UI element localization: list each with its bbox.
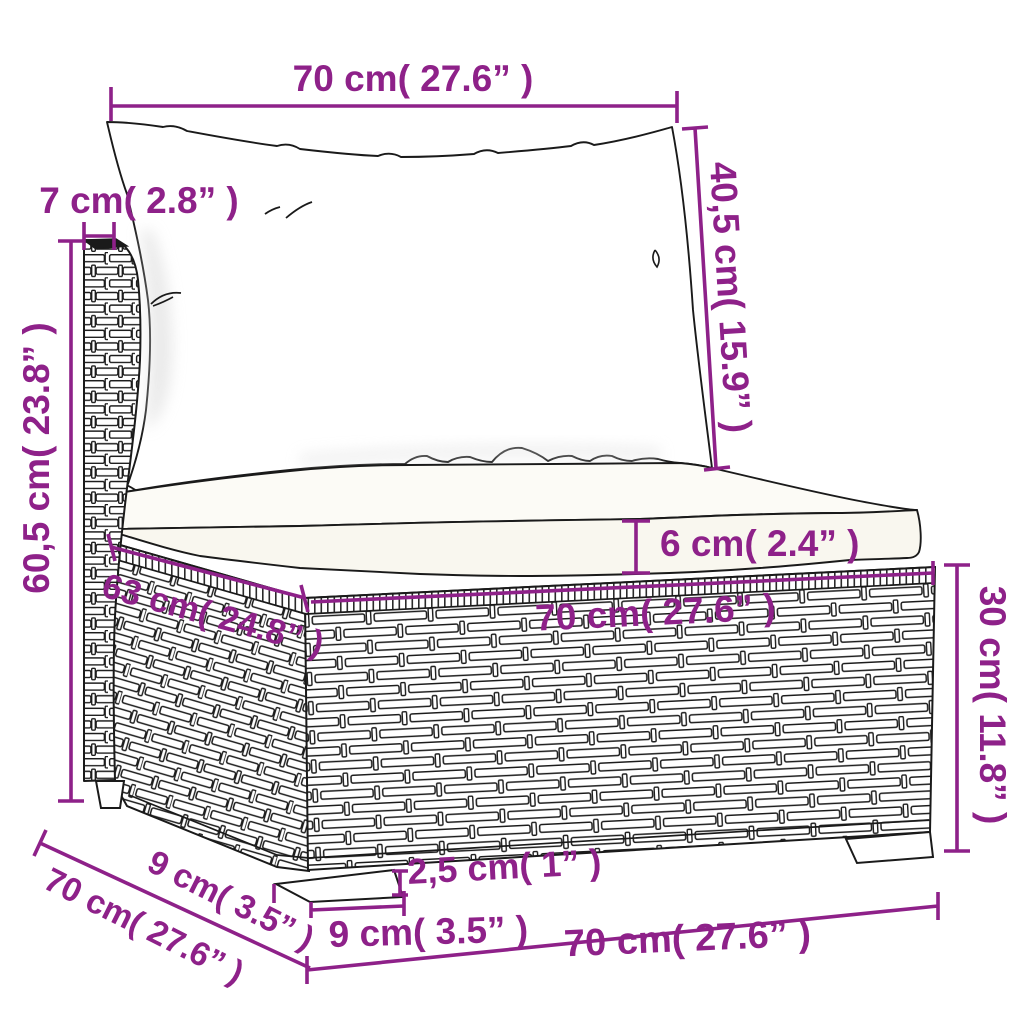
svg-text:70 cm( 27.6” ): 70 cm( 27.6” ) [293,58,534,99]
svg-text:9 cm( 3.5” ): 9 cm( 3.5” ) [328,908,529,955]
svg-text:60,5 cm( 23.8” ): 60,5 cm( 23.8” ) [16,322,57,593]
svg-text:7 cm( 2.8” ): 7 cm( 2.8” ) [39,180,238,221]
svg-text:30 cm( 11.8” ): 30 cm( 11.8” ) [972,586,1013,825]
svg-text:6 cm( 2.4” ): 6 cm( 2.4” ) [660,523,859,564]
